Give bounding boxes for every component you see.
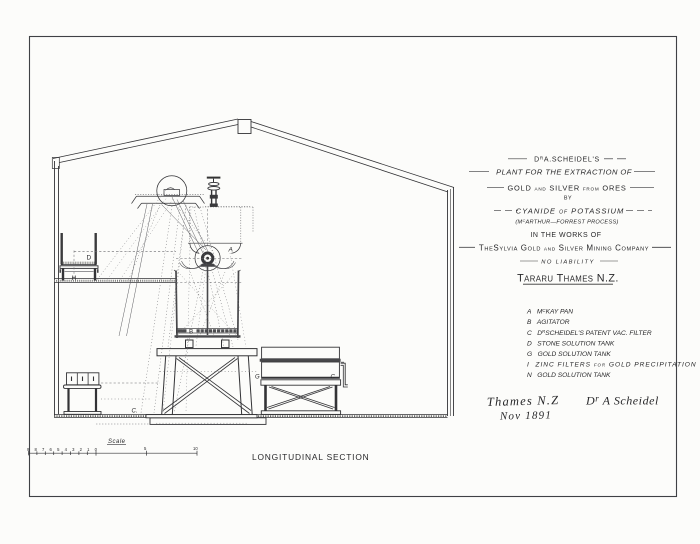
svg-text:(MCARTHUR—FORREST PROCESS): (MCARTHUR—FORREST PROCESS) [515, 219, 618, 225]
svg-text:Dr A Scheidel: Dr A Scheidel [585, 394, 659, 408]
svg-text:Nov 1891: Nov 1891 [499, 409, 552, 422]
svg-text:C: C [331, 375, 336, 381]
svg-text:THESYLVIA GOLD AND SILVER MINI: THESYLVIA GOLD AND SILVER MINING COMPANY [479, 244, 649, 253]
svg-text:IN THE WORKS OF: IN THE WORKS OF [530, 232, 601, 239]
svg-text:Scale: Scale [108, 439, 126, 445]
svg-text:C DRSCHEIDEL'S PATENT VAC. F: C DRSCHEIDEL'S PATENT VAC. FILTER [527, 329, 652, 337]
svg-text:B: B [189, 329, 193, 336]
svg-text:I ZINC FILTERS FOR GOLD PRECI: I ZINC FILTERS FOR GOLD PRECIPITATION [527, 361, 697, 368]
svg-text:Thames N.Z: Thames N.Z [487, 393, 560, 409]
svg-text:A MCKAY PAN: A MCKAY PAN [526, 308, 573, 316]
svg-text:CYANIDE OF POTASSIUM: CYANIDE OF POTASSIUM [516, 207, 625, 216]
svg-text:C.: C. [132, 409, 138, 415]
svg-text:GOLD AND SILVER FROM ORES: GOLD AND SILVER FROM ORES [507, 183, 626, 192]
svg-text:DRA.SCHEIDEL'S: DRA.SCHEIDEL'S [534, 156, 600, 164]
svg-text:D: D [87, 255, 92, 262]
svg-text:TARARU THAMES N.Z.: TARARU THAMES N.Z. [517, 273, 619, 285]
svg-text:G: G [255, 375, 260, 381]
svg-text:9 8 7 6 5 4 3 2 1 0: 9 8 7 6 5 4 3 2 1 0 [27, 447, 98, 452]
svg-text:D STONE SOLUTION TANK: D STONE SOLUTION TANK [527, 340, 615, 347]
svg-text:LONGITUDINAL SECTION: LONGITUDINAL SECTION [252, 452, 370, 462]
svg-text:10: 10 [193, 446, 198, 451]
svg-text:B AGITATOR: B AGITATOR [527, 319, 570, 326]
svg-text:PLANT FOR THE EXTRACTION OF: PLANT FOR THE EXTRACTION OF [496, 168, 632, 177]
svg-text:H: H [72, 275, 77, 282]
svg-text:NO LIABILITY: NO LIABILITY [541, 260, 595, 266]
svg-text:A: A [228, 247, 233, 254]
svg-text:5: 5 [144, 446, 147, 451]
svg-text:G GOLD SOLUTION TANK: G GOLD SOLUTION TANK [527, 351, 611, 358]
svg-text:N GOLD SOLUTION TANK: N GOLD SOLUTION TANK [527, 372, 611, 379]
svg-text:BY: BY [564, 195, 572, 201]
